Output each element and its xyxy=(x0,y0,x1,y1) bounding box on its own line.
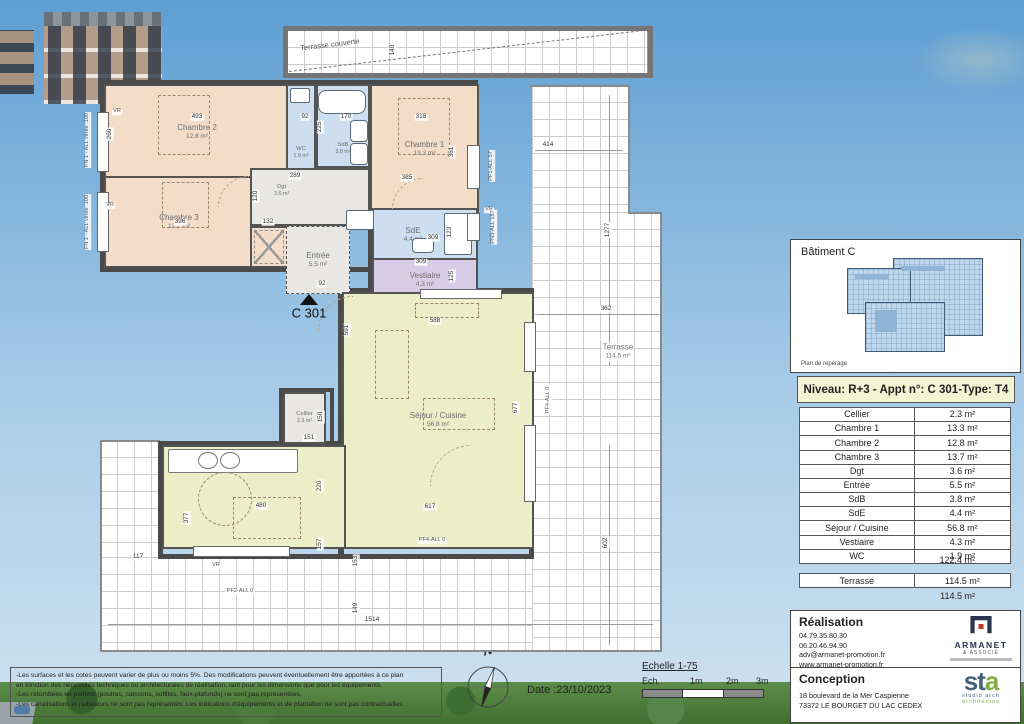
covered-terrace-outline xyxy=(283,26,653,78)
room-area: 3.6 m² xyxy=(274,191,289,198)
dimension-label: 220 xyxy=(317,480,324,493)
armanet-logo-bar xyxy=(950,658,1012,661)
opening-label: PN3-ALL 157 xyxy=(491,209,497,244)
dimension-label: 361 xyxy=(449,146,456,159)
room-name-cell: Chambre 1 xyxy=(800,422,915,436)
opening-label: VR xyxy=(105,203,115,209)
terrace-edge xyxy=(628,212,662,214)
scale-segment xyxy=(724,690,763,697)
window xyxy=(193,546,290,557)
window xyxy=(97,192,109,252)
credit-line: 18 boulevard de la Mer Caspienne xyxy=(799,691,942,701)
scale-segment xyxy=(682,690,723,697)
dimension-label: 1514 xyxy=(364,617,380,624)
note-line: -Les surfaces et les cotes peuvent varie… xyxy=(16,671,436,681)
realisation-block: Réalisation 04.79.35.80.3006.20.46.94.90… xyxy=(790,610,1021,669)
sliding-door xyxy=(420,289,502,299)
terrasse-table: Terrasse 114.5 m² xyxy=(799,573,1011,588)
table-row: Séjour / Cuisine56.8 m² xyxy=(800,521,1011,535)
rooms-table: Cellier2.3 m²Chambre 113.3 m²Chambre 212… xyxy=(799,407,1011,564)
dimension-label: 149 xyxy=(353,602,360,615)
sta-logo-sub2: architectes xyxy=(942,699,1020,705)
room-name: Entrée xyxy=(306,251,330,260)
conception-lines: 18 boulevard de la Mer Caspienne73372 LE… xyxy=(799,691,942,710)
window xyxy=(97,112,109,172)
terrasse-label: Terrasse 114.5 m² xyxy=(603,343,634,362)
sta-logo-a: a xyxy=(985,666,998,696)
kitchen-sink xyxy=(220,452,240,469)
opening-label: VR xyxy=(112,109,122,115)
note-line: -Les retombées en plafond (poutres, cais… xyxy=(16,690,436,700)
window xyxy=(524,322,536,372)
terrace-edge xyxy=(100,440,102,652)
kitchen-sink xyxy=(198,452,218,469)
apartment-header: Niveau: R+3 - Appt n°: C 301-Type: T4 xyxy=(797,376,1015,403)
opening-label: PF4-ALL 0 xyxy=(418,538,447,544)
window xyxy=(467,213,480,241)
sofa-outline xyxy=(375,330,409,399)
building-label: Bâtiment C xyxy=(801,246,855,258)
room-name: Dgt xyxy=(277,184,286,190)
room-area: 1.9 m² xyxy=(293,153,308,160)
room-name-cell: Cellier xyxy=(800,408,915,422)
table-row: SdB3.8 m² xyxy=(800,493,1011,507)
room-name: Vestiaire xyxy=(410,271,441,280)
bed-outline xyxy=(398,98,450,155)
bathtub xyxy=(318,90,366,114)
dimension-label: 260 xyxy=(107,128,114,141)
room-area-cell: 13.3 m² xyxy=(914,422,1010,436)
unit-number: C 301 xyxy=(292,306,327,321)
terrace-edge xyxy=(660,212,662,652)
note-line: en fonction des nécessités techniques ou… xyxy=(16,681,436,691)
room-area-cell: 56.8 m² xyxy=(914,521,1010,535)
room-name-cell: Vestiaire xyxy=(800,535,915,549)
dimension-label: 120 xyxy=(253,190,260,203)
table-row: SdE4.4 m² xyxy=(800,507,1011,521)
dimension-label: 117 xyxy=(132,554,144,561)
compass-icon xyxy=(465,664,511,710)
dimension-label: 602 xyxy=(603,537,610,550)
dimension-label: 588 xyxy=(429,318,442,325)
armanet-logo-icon xyxy=(966,613,996,635)
room-name: Terrasse xyxy=(603,343,634,352)
credit-line: adv@armanet-promotion.fr xyxy=(799,650,942,660)
room-area-cell: 2.3 m² xyxy=(914,408,1010,422)
date-label: Date :23/10/2023 xyxy=(527,684,611,696)
wardrobe xyxy=(254,230,284,264)
credit-line: 06.20.46.94.90 xyxy=(799,641,942,651)
room-area-cell: 3.8 m² xyxy=(914,493,1010,507)
room-name-cell: Dgt xyxy=(800,464,915,478)
armanet-logo-subtext: & ASSOCIÉ xyxy=(942,650,1020,656)
room-name: WC xyxy=(296,146,306,152)
plan-sheet: Terrasse couverte Chambre 2 12.8 m² Cham… xyxy=(0,0,1024,724)
terrace-edge xyxy=(530,85,628,87)
scale-title: Echelle 1-75 xyxy=(642,661,698,672)
dimension-label: 480 xyxy=(255,503,268,510)
armanet-logo: ARMANET & ASSOCIÉ xyxy=(942,611,1020,670)
terrasse-area-cell: 114.5 m² xyxy=(914,574,1010,588)
terrace-edge xyxy=(100,650,662,652)
room-area-cell: 4.4 m² xyxy=(914,507,1010,521)
dimension-label: 289 xyxy=(289,173,302,180)
room-area-cell: 13.7 m² xyxy=(914,450,1010,464)
dimension-label: 1277 xyxy=(605,222,612,238)
room-area-cell: 4.3 m² xyxy=(914,535,1010,549)
conception-title: Conception xyxy=(799,672,942,686)
shower-cross xyxy=(440,218,470,252)
dimension-label: 123 xyxy=(447,226,454,239)
room-area-cell: 3.6 m² xyxy=(914,464,1010,478)
dimension-label: 396 xyxy=(174,219,187,226)
room-name-cell: Chambre 2 xyxy=(800,436,915,450)
sink xyxy=(350,120,368,142)
scale-label-3m: 3m xyxy=(756,676,769,686)
dimension-label: 125 xyxy=(449,270,456,283)
terrace-edge xyxy=(628,85,630,212)
dimension-label: 591 xyxy=(344,324,351,337)
room-area: 3.8 m² xyxy=(335,149,350,156)
photo-roof-pergola xyxy=(44,12,162,26)
room-area-cell: 5.5 m² xyxy=(914,478,1010,492)
apartment-total-area: 122.4 m² xyxy=(799,555,1011,565)
opening-label: FN 1 - ALL vitrée :100 xyxy=(85,112,91,168)
dimension-label: 92 xyxy=(300,114,309,121)
mini-plan-core xyxy=(901,266,945,271)
photo-building-left xyxy=(0,30,34,94)
terrasse-total-area: 114.5 m² xyxy=(799,591,1011,601)
scale-segment xyxy=(643,690,682,697)
opening-label: FN 1 - ALL vitrée :100 xyxy=(85,194,91,250)
credit-line: 73372 LE BOURGET DU LAC CEDEX xyxy=(799,701,942,711)
terrace-edge xyxy=(100,440,160,442)
scale-label-1m: 1m xyxy=(690,676,703,686)
building-locator: Bâtiment C Plan de repérage xyxy=(790,239,1021,373)
room-name-cell: SdB xyxy=(800,493,915,507)
conception-block: Conception 18 boulevard de la Mer Caspie… xyxy=(790,667,1021,723)
credit-line: 04.79.35.80.30 xyxy=(799,631,942,641)
room-area: 4.3 m² xyxy=(410,281,441,289)
table-row: Cellier2.3 m² xyxy=(800,408,1011,422)
dimension-line xyxy=(108,624,653,625)
sta-logo-st: st xyxy=(964,666,985,696)
room-name-cell: Séjour / Cuisine xyxy=(800,521,915,535)
room-name: Cellier xyxy=(296,411,312,417)
opening-label: PF1-ALL 57 xyxy=(489,150,495,182)
room-area-cell: 12.8 m² xyxy=(914,436,1010,450)
dimension-label: 617 xyxy=(424,504,437,511)
dimension-label: 362 xyxy=(600,306,613,313)
dimension-label: 150 xyxy=(318,411,325,424)
toilet xyxy=(290,88,310,103)
dimension-label: 318 xyxy=(415,114,428,121)
window xyxy=(524,425,536,502)
dimension-label: 157 xyxy=(317,538,324,551)
terrasse-name-cell: Terrasse xyxy=(800,574,915,588)
dimension-line xyxy=(538,314,658,315)
realisation-title: Réalisation xyxy=(799,615,942,629)
dimension-label: 151 xyxy=(303,435,316,442)
dimension-label: 170 xyxy=(340,114,353,121)
dimension-label: 225 xyxy=(317,121,324,134)
armanet-logo-text: ARMANET xyxy=(942,640,1020,650)
opening-label: VR xyxy=(211,563,221,569)
room-name-cell: SdE xyxy=(800,507,915,521)
rooms-table-body: Cellier2.3 m²Chambre 113.3 m²Chambre 212… xyxy=(800,408,1011,564)
room-name-cell: Chambre 3 xyxy=(800,450,915,464)
mini-plan-core xyxy=(875,310,897,332)
bed-outline xyxy=(158,95,210,155)
table-row: Entrée5.5 m² xyxy=(800,478,1011,492)
dimension-label: 377 xyxy=(184,512,191,525)
scale-bar xyxy=(642,689,764,698)
dimension-label: 414 xyxy=(542,142,555,149)
room-name: SdB xyxy=(338,142,349,148)
round-table-outline xyxy=(198,472,252,526)
scale-label-ech: Ech. xyxy=(642,676,660,686)
sta-logo: sta studio arch architectes xyxy=(942,668,1020,710)
realisation-lines: 04.79.35.80.3006.20.46.94.90adv@armanet-… xyxy=(799,631,942,670)
dimension-label: 132 xyxy=(262,219,275,226)
dimension-label: 92 xyxy=(317,281,326,288)
opening-label: PF2-ALL 0 xyxy=(226,589,255,595)
terrace-tiles-right xyxy=(532,212,662,652)
room-area: 2.3 m² xyxy=(296,418,312,425)
sink xyxy=(350,143,368,165)
terrace-tiles-bottom xyxy=(100,557,532,652)
table-row: Chambre 212.8 m² xyxy=(800,436,1011,450)
dimension-label: 153 xyxy=(353,555,360,568)
table-row: Chambre 313.7 m² xyxy=(800,450,1011,464)
note-line: -Les canalisations et radiateurs ne sont… xyxy=(16,700,436,710)
dimension-label: 677 xyxy=(513,402,520,415)
table-row: Chambre 113.3 m² xyxy=(800,422,1011,436)
entrance-marker-icon xyxy=(300,294,318,305)
closet xyxy=(346,210,374,230)
mini-plan-core xyxy=(855,274,889,279)
dimension-label: 140 xyxy=(390,44,397,57)
terrace-tiles-left xyxy=(100,440,162,557)
scale-label-2m: 2m xyxy=(726,676,739,686)
terrace-tiles-right-upper xyxy=(532,85,628,212)
dimension-label: 385 xyxy=(401,175,414,182)
room-name: SdE xyxy=(405,226,420,235)
table-row: Terrasse 114.5 m² xyxy=(800,574,1011,588)
dimension-label: 309 xyxy=(427,235,440,242)
room-area: 114.5 m² xyxy=(603,353,634,361)
sideboard-outline xyxy=(415,303,479,318)
table-row: Vestiaire4.3 m² xyxy=(800,535,1011,549)
window xyxy=(467,145,480,189)
table-row: Dgt3.6 m² xyxy=(800,464,1011,478)
dimension-label: 493 xyxy=(191,114,204,121)
legal-notes: -Les surfaces et les cotes peuvent varie… xyxy=(10,667,442,717)
sta-logo-text: sta xyxy=(942,670,1020,693)
room-name-cell: Entrée xyxy=(800,478,915,492)
dimension-label: 309 xyxy=(415,259,428,266)
table-outline xyxy=(423,398,495,430)
locator-mini-plan xyxy=(835,258,985,354)
locator-caption: Plan de repérage xyxy=(801,361,847,367)
room-area: 5.5 m² xyxy=(306,261,330,269)
opening-label: PF4-ALL 0 xyxy=(546,386,552,415)
